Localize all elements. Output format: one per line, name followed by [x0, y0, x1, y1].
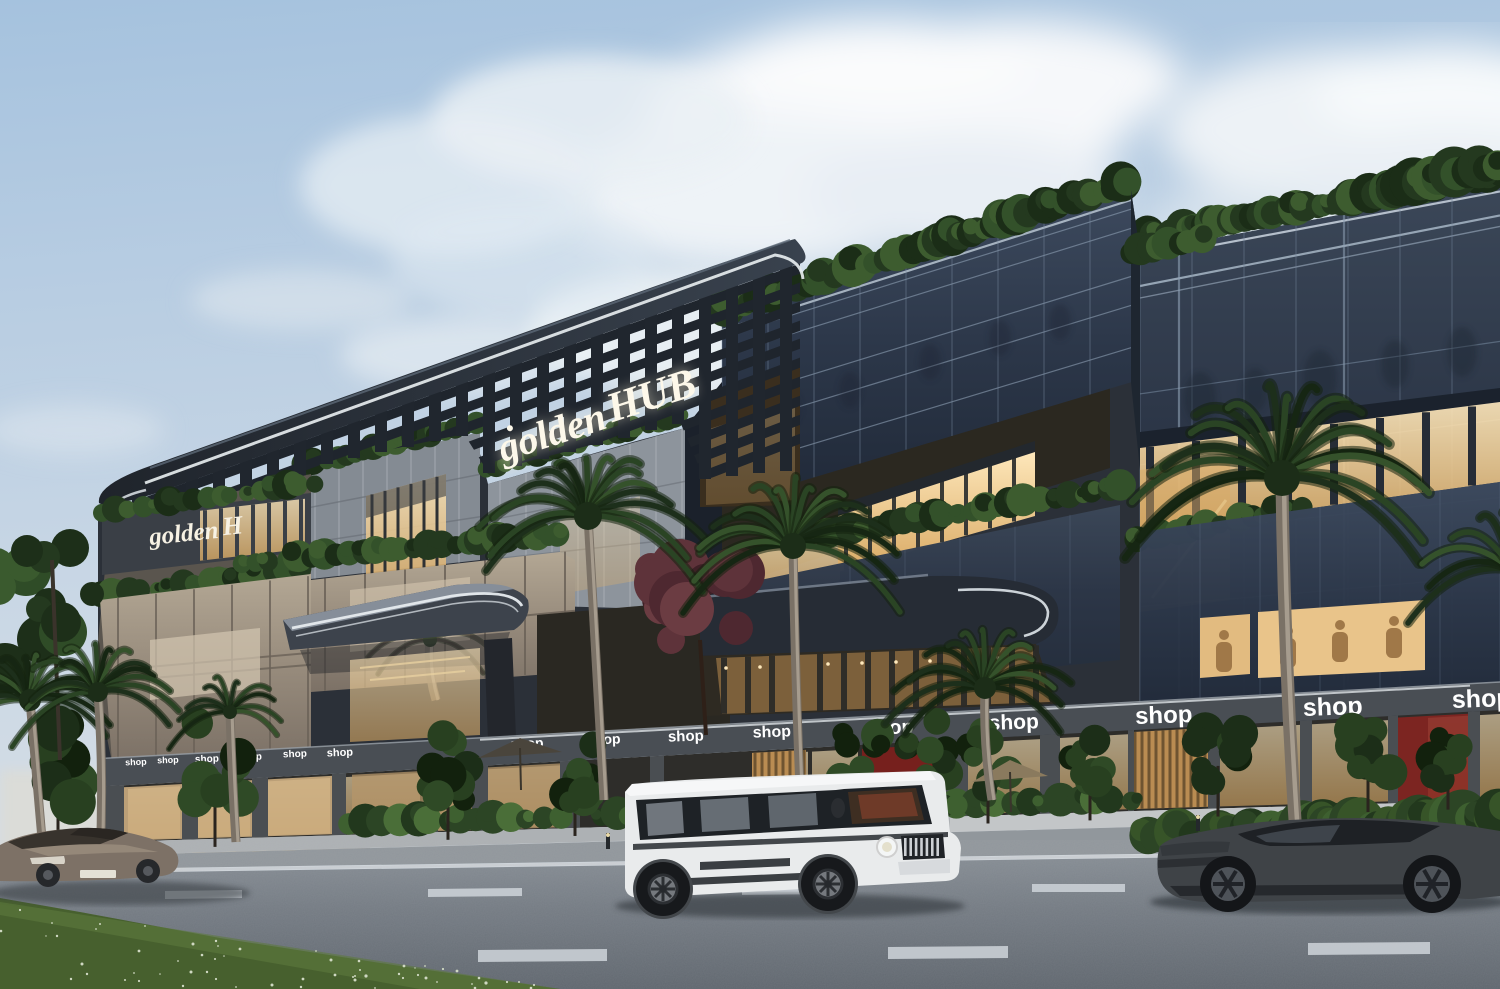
svg-text:shop: shop	[668, 727, 704, 745]
svg-text:shop: shop	[752, 723, 791, 741]
svg-text:shop: shop	[157, 755, 179, 766]
svg-text:H: H	[220, 510, 245, 541]
svg-text:shop: shop	[125, 757, 147, 768]
svg-text:shop: shop	[1135, 701, 1193, 730]
svg-text:shop: shop	[1451, 684, 1500, 714]
svg-text:shop: shop	[327, 747, 354, 760]
svg-text:shop: shop	[283, 749, 307, 761]
